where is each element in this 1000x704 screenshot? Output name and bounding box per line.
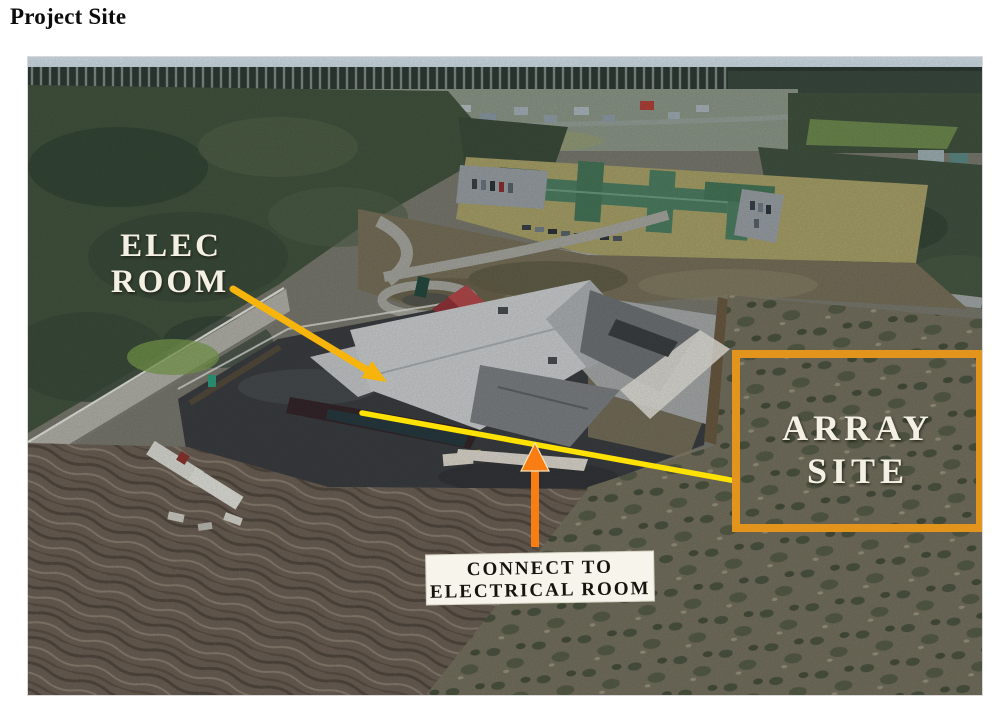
elec-room-label-line2: ROOM (111, 264, 229, 300)
array-site-label-line2: SITE (807, 451, 909, 491)
page-title: Project Site (10, 4, 126, 30)
document-page: Project Site (0, 0, 1000, 704)
connect-label-line2: ELECTRICAL ROOM (430, 578, 651, 603)
site-aerial-photo: ELEC ROOM CONNECT TO ELECTRICAL ROOM (28, 57, 982, 695)
connect-label-line1: CONNECT TO (467, 557, 614, 581)
photo-scene: ELEC ROOM CONNECT TO ELECTRICAL ROOM (28, 57, 982, 695)
array-site-label-line1: ARRAY (782, 408, 934, 448)
elec-room-label-line1: ELEC (120, 228, 222, 264)
